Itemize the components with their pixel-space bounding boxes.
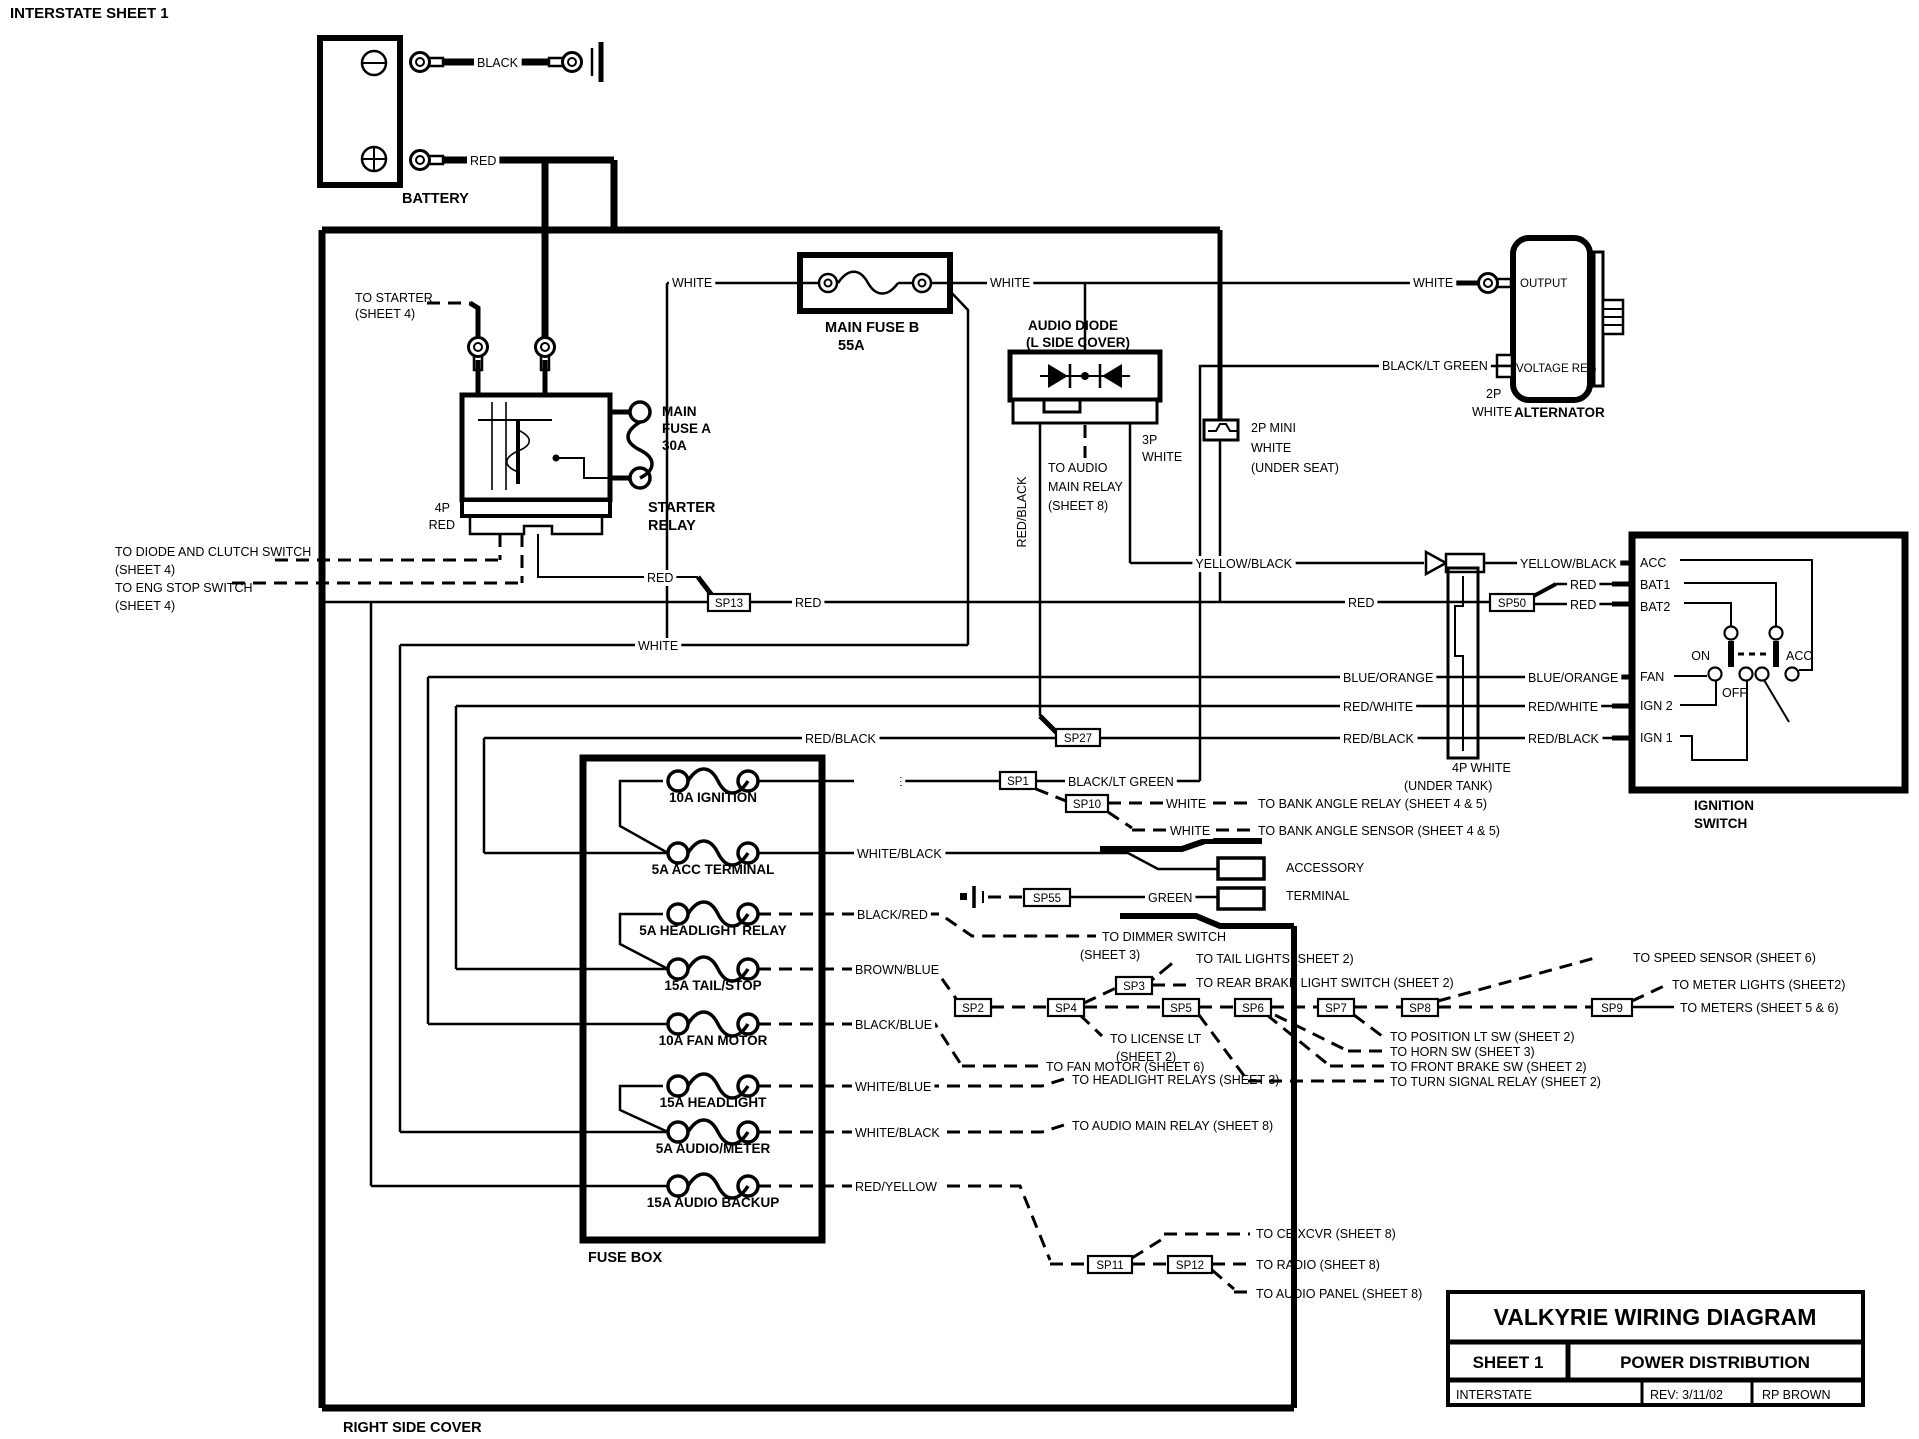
splice-sp10: SP10 (1066, 795, 1108, 812)
splice-sp9: SP9 (1592, 999, 1632, 1016)
svg-text:TERMINAL: TERMINAL (1286, 889, 1349, 903)
svg-text:YELLOW/BLACK: YELLOW/BLACK (1520, 557, 1617, 571)
svg-text:2P: 2P (1486, 387, 1501, 401)
svg-text:WHITE: WHITE (1413, 276, 1453, 290)
dest-radio: TO RADIO (SHEET 8) (1256, 1258, 1380, 1272)
dest-front-brake: TO FRONT BRAKE SW (SHEET 2) (1390, 1060, 1587, 1074)
terminal-bat1: BAT1 (1640, 578, 1670, 592)
splice-sp55: SP55 (1024, 889, 1070, 906)
svg-text:SP4: SP4 (1055, 1003, 1077, 1015)
svg-text:RELAY: RELAY (648, 518, 696, 534)
dest-dimmer: TO DIMMER SWITCH (1102, 930, 1226, 944)
svg-text:SP2: SP2 (962, 1003, 984, 1015)
svg-text:BLACK/LT GREEN: BLACK/LT GREEN (1068, 775, 1174, 789)
battery-label: BATTERY (402, 191, 469, 207)
fuse-label: 10A IGNITION (669, 790, 757, 805)
title-block-title: VALKYRIE WIRING DIAGRAM (1494, 1304, 1817, 1330)
connector-4p-white (1448, 568, 1478, 758)
accessory-label: ACCESSORY (1286, 861, 1365, 875)
splice-sp4: SP4 (1048, 999, 1084, 1016)
page-header: INTERSTATE SHEET 1 (10, 5, 169, 22)
main-fuse-b-label: MAIN FUSE B (825, 320, 919, 336)
dest-headlight-relays: TO HEADLIGHT RELAYS (SHEET 3) (1072, 1073, 1279, 1087)
svg-text:RED/BLACK: RED/BLACK (1343, 732, 1415, 746)
svg-text:BLUE/ORANGE: BLUE/ORANGE (1528, 671, 1618, 685)
wiring-diagram: SP13 SP50 SP27 SP1 SP10 SP55 SP2 SP3 SP4… (0, 0, 1919, 1439)
wire-label-red-black-vertical: RED/BLACK (1015, 476, 1029, 548)
svg-text:RED: RED (429, 518, 455, 532)
svg-text:SP8: SP8 (1409, 1003, 1431, 1015)
splice-sp5: SP5 (1163, 999, 1199, 1016)
svg-text:WHITE: WHITE (1472, 405, 1512, 419)
svg-text:30A: 30A (662, 438, 687, 453)
conn-4p-white-label: 4P WHITE (1452, 761, 1511, 775)
ring-terminal-icon (411, 151, 444, 170)
svg-text:SP9: SP9 (1601, 1003, 1623, 1015)
terminal-bat2: BAT2 (1640, 600, 1670, 614)
main-fuse-b (800, 255, 950, 311)
svg-text:WHITE/BLUE: WHITE/BLUE (855, 1080, 931, 1094)
terminal-ign2: IGN 2 (1640, 699, 1673, 713)
svg-text:SP27: SP27 (1064, 733, 1092, 745)
dest-rear-brake: TO REAR BRAKE LIGHT SWITCH (SHEET 2) (1196, 976, 1454, 990)
splice-sp50: SP50 (1490, 594, 1534, 611)
dest-cb-xcvr: TO CB XCVR (SHEET 8) (1256, 1227, 1396, 1241)
svg-text:SP13: SP13 (715, 598, 743, 610)
splice-sp7: SP7 (1318, 999, 1354, 1016)
svg-text:SP1: SP1 (1007, 776, 1029, 788)
starter-relay-label: STARTER (648, 500, 716, 516)
svg-text:FUSE A: FUSE A (662, 421, 711, 436)
svg-text:SWITCH: SWITCH (1694, 816, 1747, 831)
position-acc: ACC (1786, 649, 1812, 663)
wire-label-blue-orange: BLUE/ORANGE (1343, 671, 1433, 685)
title-block-rev: REV: 3/11/02 (1650, 1388, 1723, 1402)
svg-text:BLACK/RED: BLACK/RED (857, 908, 928, 922)
svg-text:WHITE: WHITE (1166, 797, 1206, 811)
fuse-box (583, 758, 822, 1240)
svg-text:RED: RED (1348, 596, 1374, 610)
svg-text:5A AUDIO/METER: 5A AUDIO/METER (656, 1141, 771, 1156)
dest-meter-lights: TO METER LIGHTS (SHEET2) (1672, 978, 1845, 992)
splice-sp3: SP3 (1116, 977, 1152, 994)
svg-text:RED/BLACK: RED/BLACK (1528, 732, 1600, 746)
to-starter-label: TO STARTER (355, 291, 433, 305)
svg-text:WHITE: WHITE (1170, 824, 1210, 838)
ignition-switch (1632, 535, 1905, 790)
dest-fan-motor: TO FAN MOTOR (SHEET 6) (1046, 1060, 1204, 1074)
svg-text:SP11: SP11 (1096, 1260, 1123, 1272)
ignition-switch-label: IGNITION (1694, 798, 1754, 813)
mini-2p-connector (1204, 420, 1238, 440)
accessory-terminal (960, 858, 1264, 909)
svg-text:WHITE/BLACK: WHITE/BLACK (855, 1126, 940, 1140)
splice-sp2: SP2 (955, 999, 991, 1016)
svg-text:RED: RED (795, 596, 821, 610)
splice-sp6: SP6 (1235, 999, 1271, 1016)
svg-text:15A TAIL/STOP: 15A TAIL/STOP (664, 978, 761, 993)
position-off: OFF (1722, 686, 1747, 700)
audio-diode-conn-label: 3P (1142, 433, 1157, 447)
connector-2p-icon (1497, 355, 1512, 366)
title-block-author: RP BROWN (1762, 1388, 1831, 1402)
terminal-fan: FAN (1640, 670, 1664, 684)
title-block-sheet: SHEET 1 (1473, 1353, 1544, 1372)
svg-text:SP3: SP3 (1123, 981, 1145, 993)
svg-text:(SHEET 4): (SHEET 4) (115, 563, 175, 577)
diode-icon (1426, 552, 1446, 574)
wire-label-green: GREEN (1148, 891, 1192, 905)
starter-relay (462, 338, 652, 535)
svg-text:(SHEET 4): (SHEET 4) (115, 599, 175, 613)
svg-text:55A: 55A (838, 338, 865, 354)
svg-text:SP50: SP50 (1498, 598, 1526, 610)
terminal-ign1: IGN 1 (1640, 731, 1673, 745)
splice-sp8: SP8 (1402, 999, 1438, 1016)
title-block-model: INTERSTATE (1456, 1388, 1532, 1402)
svg-text:RED/WHITE: RED/WHITE (1528, 700, 1598, 714)
dest-bank-angle-sensor: TO BANK ANGLE SENSOR (SHEET 4 & 5) (1258, 824, 1500, 838)
splice-sp1: SP1 (1000, 772, 1036, 789)
inline-diode (1426, 552, 1484, 574)
relay-connector-label: 4P (435, 501, 450, 515)
to-diode-clutch-label: TO DIODE AND CLUTCH SWITCH (115, 545, 311, 559)
svg-text:(L SIDE COVER): (L SIDE COVER) (1026, 335, 1130, 350)
dest-position: TO POSITION LT SW (SHEET 2) (1390, 1030, 1575, 1044)
right-side-cover-label: RIGHT SIDE COVER (343, 1420, 482, 1436)
svg-text:(UNDER TANK): (UNDER TANK) (1404, 779, 1492, 793)
dest-audio-main-relay: TO AUDIO MAIN RELAY (SHEET 8) (1072, 1119, 1273, 1133)
svg-text:5A ACC TERMINAL: 5A ACC TERMINAL (652, 862, 775, 877)
labels: INTERSTATE SHEET 1 BATTERY BLACK RED TO … (10, 5, 1845, 1436)
svg-text:RED: RED (1570, 598, 1596, 612)
dest-speed-sensor: TO SPEED SENSOR (SHEET 6) (1633, 951, 1816, 965)
wire-label-red-white: RED/WHITE (1343, 700, 1413, 714)
svg-text:RED/YELLOW: RED/YELLOW (855, 1180, 937, 1194)
ring-terminal-icon (549, 53, 582, 72)
wire-label-white: WHITE (672, 276, 712, 290)
mini-conn-label: 2P MINI (1251, 421, 1296, 435)
alternator-label: ALTERNATOR (1514, 405, 1605, 420)
splice-sp13: SP13 (708, 594, 750, 611)
svg-text:RED: RED (647, 571, 673, 585)
dest-license: TO LICENSE LT (1110, 1032, 1202, 1046)
svg-text:(SHEET 8): (SHEET 8) (1048, 499, 1108, 513)
svg-text:BLACK/BLUE: BLACK/BLUE (855, 1018, 932, 1032)
alternator-output-label: OUTPUT (1520, 278, 1567, 290)
svg-text:SP55: SP55 (1033, 893, 1061, 905)
svg-text:RED: RED (1570, 578, 1596, 592)
dest-horn: TO HORN SW (SHEET 3) (1390, 1045, 1535, 1059)
svg-text:SP7: SP7 (1325, 1003, 1347, 1015)
title-block-subtitle: POWER DISTRIBUTION (1620, 1353, 1810, 1372)
dest-audio-panel: TO AUDIO PANEL (SHEET 8) (1256, 1287, 1422, 1301)
splice-sp11: SP11 (1088, 1256, 1132, 1273)
svg-text:SP5: SP5 (1170, 1003, 1192, 1015)
svg-text:WHITE: WHITE (1251, 441, 1291, 455)
to-eng-stop-label: TO ENG STOP SWITCH (115, 581, 253, 595)
svg-text:10A FAN MOTOR: 10A FAN MOTOR (659, 1033, 768, 1048)
to-starter-sheet: (SHEET 4) (355, 307, 415, 321)
dest-turn-signal: TO TURN SIGNAL RELAY (SHEET 2) (1390, 1075, 1601, 1089)
svg-text:WHITE: WHITE (638, 639, 678, 653)
wire-label-black: BLACK (477, 56, 519, 70)
splice-sp12: SP12 (1168, 1256, 1212, 1273)
fuse-box-label: FUSE BOX (588, 1250, 662, 1266)
svg-text:(SHEET 3): (SHEET 3) (1080, 948, 1140, 962)
svg-text:(UNDER SEAT): (UNDER SEAT) (1251, 461, 1339, 475)
audio-diode-label: AUDIO DIODE (1028, 318, 1118, 333)
to-audio-main-relay-label: TO AUDIO (1048, 461, 1108, 475)
position-on: ON (1691, 649, 1710, 663)
dest-tail-lights: TO TAIL LIGHTS (SHEET 2) (1196, 952, 1354, 966)
audio-diode (1010, 352, 1160, 423)
wire-label-black-lt-green: BLACK/LT GREEN (1382, 359, 1488, 373)
alternator (1479, 238, 1624, 400)
svg-text:WHITE: WHITE (990, 276, 1030, 290)
ring-terminal-icon (411, 53, 444, 72)
svg-text:RED/BLACK: RED/BLACK (805, 732, 877, 746)
svg-text:WHITE: WHITE (1142, 450, 1182, 464)
dest-meters: TO METERS (SHEET 5 & 6) (1680, 1001, 1839, 1015)
svg-text:SP12: SP12 (1176, 1260, 1204, 1272)
wire-label-yellow-black: YELLOW/BLACK (1195, 557, 1292, 571)
svg-text:MAIN RELAY: MAIN RELAY (1048, 480, 1123, 494)
main-fuse-a-label: MAIN (662, 404, 697, 419)
svg-text:15A AUDIO BACKUP: 15A AUDIO BACKUP (647, 1195, 780, 1210)
terminal-acc: ACC (1640, 556, 1666, 570)
svg-text:SP6: SP6 (1242, 1003, 1264, 1015)
svg-text:5A HEADLIGHT RELAY: 5A HEADLIGHT RELAY (639, 923, 787, 938)
svg-text:SP10: SP10 (1073, 799, 1101, 811)
wire-label-red: RED (470, 154, 496, 168)
dest-bank-angle-relay: TO BANK ANGLE RELAY (SHEET 4 & 5) (1258, 797, 1487, 811)
svg-text:WHITE/BLACK: WHITE/BLACK (857, 847, 942, 861)
alternator-voltage-reg-label: VOLTAGE REG (1516, 363, 1597, 375)
splice-sp27: SP27 (1056, 729, 1100, 746)
ring-terminal-icon (1479, 274, 1512, 293)
svg-text:15A HEADLIGHT: 15A HEADLIGHT (660, 1095, 768, 1110)
svg-text:BROWN/BLUE: BROWN/BLUE (855, 963, 939, 977)
